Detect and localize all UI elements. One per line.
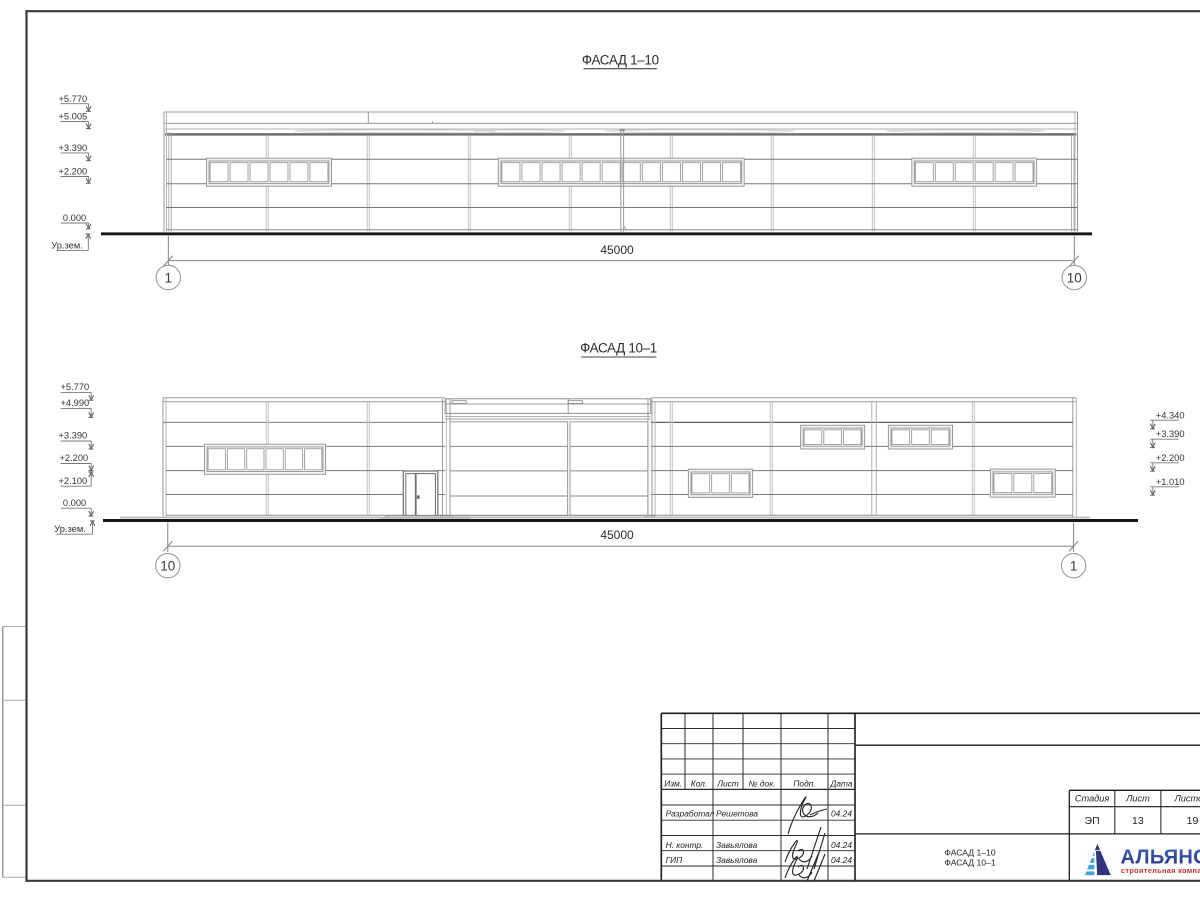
svg-text:Н. контр.: Н. контр.: [666, 840, 704, 850]
svg-text:ГИП: ГИП: [666, 855, 684, 865]
svg-text:ФАСАД 10–1: ФАСАД 10–1: [944, 857, 995, 867]
svg-text:45000: 45000: [600, 528, 634, 542]
svg-text:+5.770: +5.770: [58, 94, 87, 104]
svg-text:Кол.: Кол.: [691, 779, 707, 789]
svg-text:Разработал: Разработал: [666, 809, 715, 819]
svg-text:+3.390: +3.390: [1156, 429, 1185, 439]
svg-text:+2.200: +2.200: [59, 453, 88, 463]
svg-text:+5.005: +5.005: [58, 112, 87, 122]
svg-text:0.000: 0.000: [63, 213, 86, 223]
svg-text:ФАСАД 10–1: ФАСАД 10–1: [580, 341, 657, 356]
svg-text:Лист: Лист: [716, 779, 739, 789]
svg-text:Лист: Лист: [1125, 793, 1150, 803]
svg-text:0.000: 0.000: [63, 498, 86, 508]
svg-text:+4.990: +4.990: [60, 398, 89, 408]
svg-text:+3.390: +3.390: [58, 430, 87, 440]
svg-text:04.24: 04.24: [831, 809, 852, 819]
svg-text:Изм.: Изм.: [664, 779, 682, 789]
svg-text:ФАСАД 1–10: ФАСАД 1–10: [944, 848, 995, 858]
svg-text:ФАСАД 1–10: ФАСАД 1–10: [582, 52, 659, 67]
svg-text:10: 10: [1067, 270, 1082, 285]
svg-text:45000: 45000: [600, 243, 634, 257]
svg-text:Листов: Листов: [1174, 793, 1200, 803]
svg-text:04.24: 04.24: [831, 855, 852, 865]
svg-text:+2.100: +2.100: [58, 476, 87, 486]
svg-text:+3.390: +3.390: [58, 143, 87, 153]
svg-text:04.24: 04.24: [831, 840, 852, 850]
svg-text:Подп.: Подп.: [793, 779, 815, 789]
svg-text:ЭП: ЭП: [1085, 815, 1100, 827]
svg-text:строительная компания: строительная компания: [1121, 866, 1200, 875]
svg-text:Завьялова: Завьялова: [716, 840, 758, 850]
svg-text:Завьялова: Завьялова: [716, 855, 758, 865]
svg-text:Стадия: Стадия: [1075, 793, 1109, 803]
svg-text:+5.770: +5.770: [60, 382, 89, 392]
svg-text:№ док.: № док.: [749, 779, 776, 789]
svg-text:Решетова: Решетова: [716, 809, 758, 819]
svg-text:+2.200: +2.200: [1156, 453, 1185, 463]
svg-text:1: 1: [1070, 558, 1078, 573]
svg-text:1: 1: [165, 270, 173, 285]
svg-text:+1.010: +1.010: [1156, 477, 1185, 487]
svg-text:+4.340: +4.340: [1156, 410, 1185, 420]
svg-text:Ур.зем.: Ур.зем.: [51, 241, 83, 251]
svg-text:Дата: Дата: [829, 779, 852, 789]
svg-text:+2.200: +2.200: [58, 167, 87, 177]
svg-text:13: 13: [1132, 815, 1144, 827]
svg-text:Ур.зем.: Ур.зем.: [54, 524, 86, 534]
svg-text:10: 10: [160, 558, 175, 573]
svg-text:19: 19: [1187, 815, 1199, 827]
